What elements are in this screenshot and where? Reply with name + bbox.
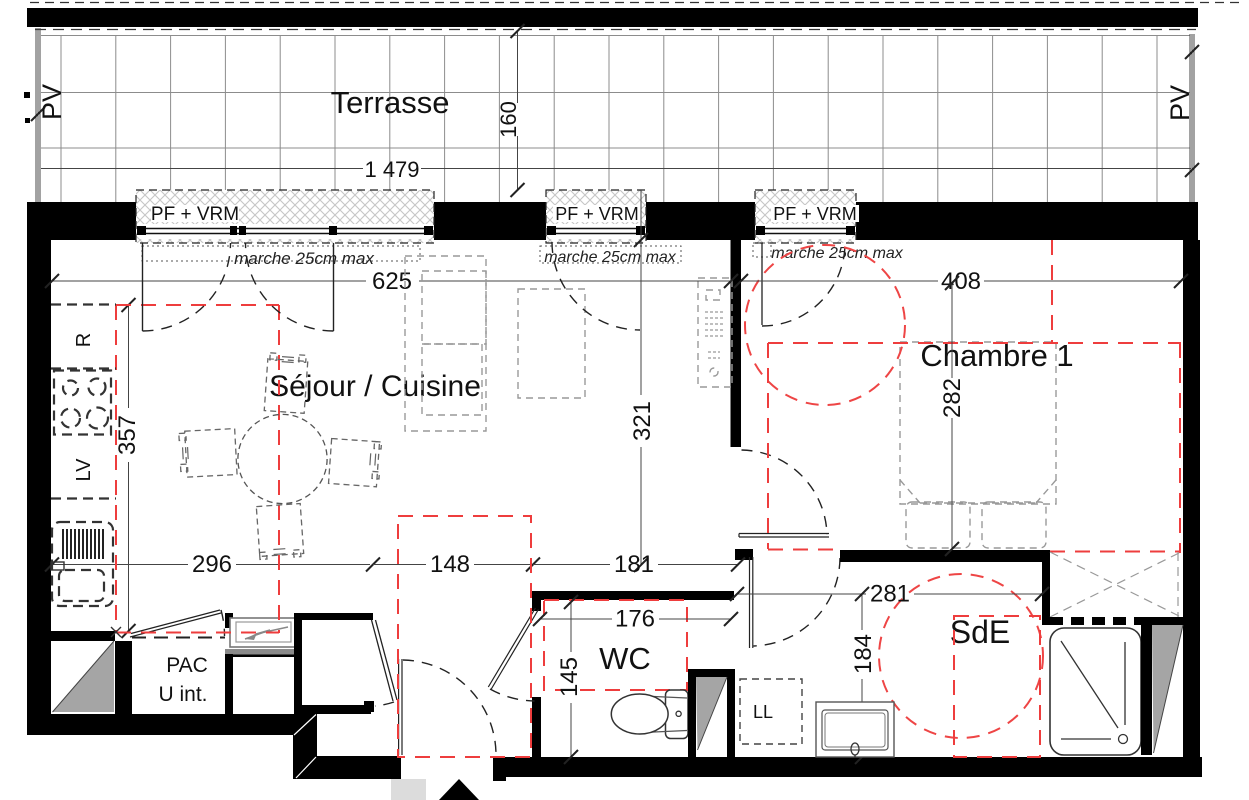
svg-text:145: 145 (556, 657, 583, 697)
svg-text:marche 25cm max: marche 25cm max (234, 249, 374, 268)
svg-text:PV: PV (1165, 85, 1195, 121)
svg-text:PAC: PAC (166, 654, 208, 677)
svg-text:1 479: 1 479 (364, 157, 419, 182)
svg-text:282: 282 (939, 378, 966, 418)
svg-text:LV: LV (73, 458, 95, 482)
svg-text:148: 148 (430, 551, 470, 578)
svg-text:Terrasse: Terrasse (331, 85, 450, 120)
svg-text:160: 160 (496, 101, 521, 138)
svg-text:LL: LL (753, 702, 773, 722)
svg-text:321: 321 (629, 401, 656, 441)
svg-text:marche 25cm max: marche 25cm max (544, 249, 677, 266)
svg-text:176: 176 (615, 606, 655, 633)
svg-text:281: 281 (870, 581, 910, 608)
svg-text:PF + VRM: PF + VRM (151, 204, 239, 225)
svg-text:PF + VRM: PF + VRM (773, 204, 857, 224)
svg-text:WC: WC (599, 641, 651, 676)
svg-text:357: 357 (114, 415, 141, 455)
svg-text:184: 184 (850, 634, 877, 674)
svg-text:Séjour / Cuisine: Séjour / Cuisine (269, 370, 481, 403)
svg-text:PV: PV (37, 84, 67, 120)
svg-text:625: 625 (372, 268, 412, 295)
svg-text:SdE: SdE (950, 614, 1010, 650)
svg-text:408: 408 (941, 268, 981, 295)
svg-text:296: 296 (192, 551, 232, 578)
svg-text:R: R (73, 333, 95, 347)
svg-text:181: 181 (614, 551, 654, 578)
svg-text:U int.: U int. (158, 683, 207, 706)
svg-text:PF + VRM: PF + VRM (555, 204, 639, 224)
